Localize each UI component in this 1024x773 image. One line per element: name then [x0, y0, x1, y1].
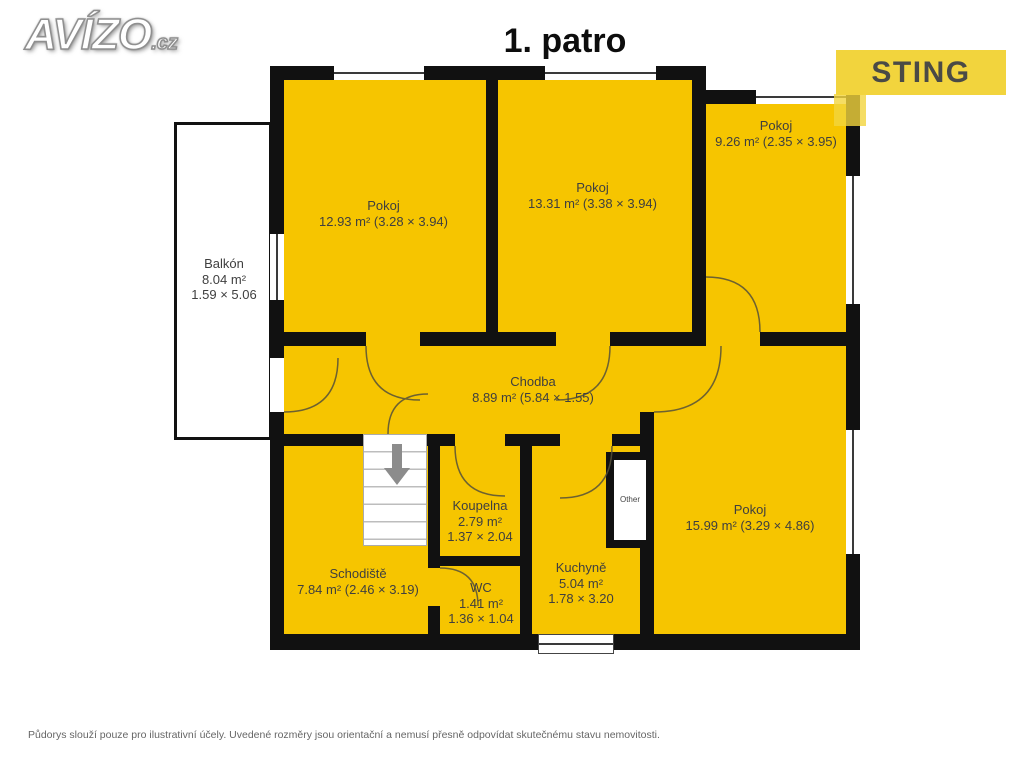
room-label-schodiste: Schodiště 7.84 m² (2.46 × 3.19) — [288, 566, 428, 597]
room-label-wc: WC 1.41 m² 1.36 × 1.04 — [438, 580, 524, 627]
room-area: 8.04 m² — [180, 272, 268, 288]
room-dims: 1.78 × 3.20 — [530, 591, 632, 607]
disclaimer-text: Půdorys slouží pouze pro ilustrativní úč… — [28, 729, 988, 741]
door-arc — [654, 346, 721, 412]
room-dims: 13.31 m² (3.38 × 3.94) — [505, 196, 680, 212]
room-label-balkon: Balkón 8.04 m² 1.59 × 5.06 — [180, 256, 268, 303]
room-name: Pokoj — [296, 198, 471, 214]
room-label-kuchyne: Kuchyně 5.04 m² 1.78 × 3.20 — [530, 560, 632, 607]
room-name: Balkón — [180, 256, 268, 272]
sting-logo-overlay-square — [834, 94, 866, 126]
door-arc — [284, 358, 338, 412]
room-label-pokoj-4: Pokoj 15.99 m² (3.29 × 4.86) — [660, 502, 840, 533]
door-arc — [560, 446, 612, 498]
room-label-pokoj-1: Pokoj 12.93 m² (3.28 × 3.94) — [296, 198, 471, 229]
floor-title: 1. patro — [415, 22, 715, 61]
room-name: Pokoj — [660, 502, 840, 518]
room-area: 2.79 m² — [434, 514, 526, 530]
sting-logo: STING — [836, 50, 1006, 95]
room-dims: 9.26 m² (2.35 × 3.95) — [700, 134, 852, 150]
room-name: Kuchyně — [530, 560, 632, 576]
room-dims: 7.84 m² (2.46 × 3.19) — [288, 582, 428, 598]
room-dims: 1.36 × 1.04 — [438, 611, 524, 627]
room-name: Koupelna — [434, 498, 526, 514]
door-arc — [455, 446, 505, 496]
avizo-logo-suffix: .cz — [151, 32, 178, 54]
room-name: WC — [438, 580, 524, 596]
room-dims: 1.59 × 5.06 — [180, 287, 268, 303]
door-arc — [366, 346, 420, 400]
room-name: Pokoj — [505, 180, 680, 196]
room-dims: 1.37 × 2.04 — [434, 529, 526, 545]
room-label-pokoj-3: Pokoj 9.26 m² (2.35 × 3.95) — [700, 118, 852, 149]
room-label-pokoj-2: Pokoj 13.31 m² (3.38 × 3.94) — [505, 180, 680, 211]
room-name: Pokoj — [700, 118, 852, 134]
room-dims: 8.89 m² (5.84 × 1.55) — [443, 390, 623, 406]
room-name: Chodba — [443, 374, 623, 390]
room-dims: 12.93 m² (3.28 × 3.94) — [296, 214, 471, 230]
avizo-logo-text: AVÍZO — [25, 10, 151, 59]
room-label-koupelna: Koupelna 2.79 m² 1.37 × 2.04 — [434, 498, 526, 545]
room-dims: 15.99 m² (3.29 × 4.86) — [660, 518, 840, 534]
room-name: Schodiště — [288, 566, 428, 582]
room-label-chodba: Chodba 8.89 m² (5.84 × 1.55) — [443, 374, 623, 405]
avizo-logo: AVÍZO.cz — [25, 10, 178, 60]
door-arc — [706, 277, 760, 332]
room-area: 1.41 m² — [438, 596, 524, 612]
room-area: 5.04 m² — [530, 576, 632, 592]
room-label-other: Other — [604, 495, 656, 504]
